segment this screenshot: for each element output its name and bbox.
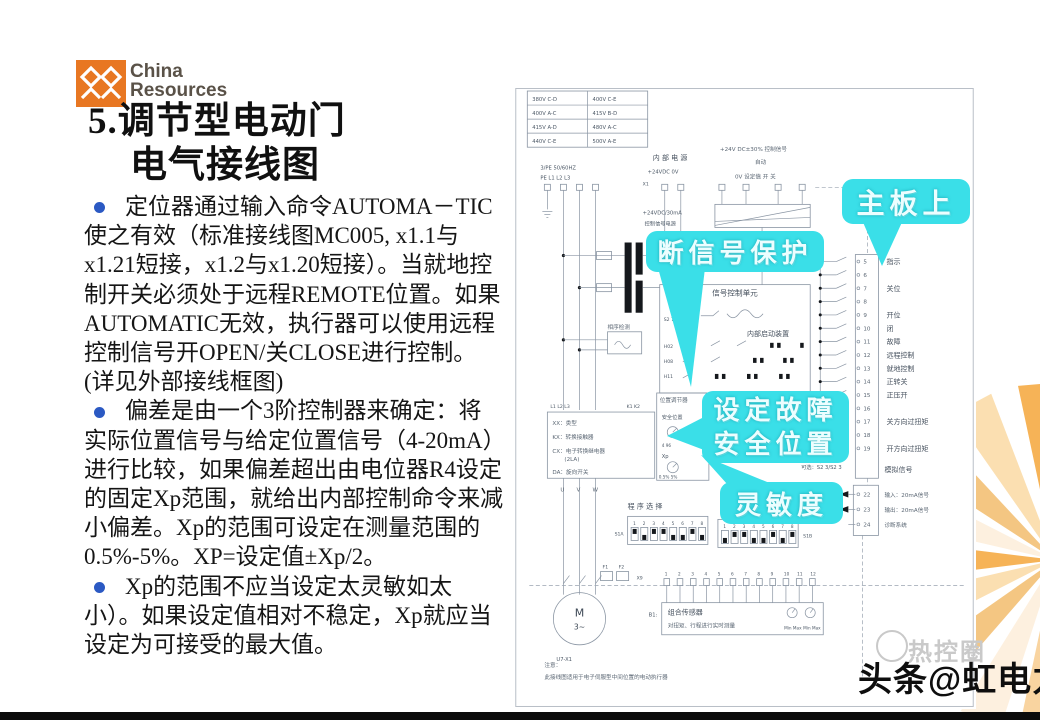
svg-text:KX：转换接触器: KX：转换接触器 xyxy=(552,433,594,441)
svg-text:对扭矩、行程进行实时测量: 对扭矩、行程进行实时测量 xyxy=(668,622,736,630)
callout-mainboard-text: 主板上 xyxy=(856,182,955,222)
presentation-slide: China Resources 5.调节型电动门 电气接线图 定位器通过输入命令… xyxy=(0,0,1040,720)
svg-text:15: 15 xyxy=(863,393,871,399)
svg-text:6: 6 xyxy=(731,572,734,577)
svg-text:19: 19 xyxy=(863,446,871,452)
callout-signal-loss-text: 断信号保护 xyxy=(657,233,812,270)
svg-text:闭: 闭 xyxy=(886,324,893,333)
svg-text:8: 8 xyxy=(757,572,760,577)
svg-text:关位: 关位 xyxy=(886,284,900,293)
svg-text:6: 6 xyxy=(681,521,684,526)
svg-text:17: 17 xyxy=(863,420,871,426)
svg-text:组合传感器: 组合传感器 xyxy=(668,608,703,617)
svg-text:3: 3 xyxy=(743,524,746,529)
svg-text:6: 6 xyxy=(863,273,867,279)
svg-text:诊断系统: 诊断系统 xyxy=(884,521,907,529)
svg-text:W: W xyxy=(593,487,599,493)
bullet-text: 偏差是由一个3阶控制器来确定：将实际位置信号与给定位置信号（4-20mA）进行比… xyxy=(84,398,503,569)
svg-text:10: 10 xyxy=(784,572,790,577)
svg-text:7: 7 xyxy=(691,521,694,526)
svg-text:内部启动装置: 内部启动装置 xyxy=(747,329,789,338)
svg-text:440V C-E: 440V C-E xyxy=(532,139,556,145)
svg-text:安全位置: 安全位置 xyxy=(662,413,683,421)
svg-text:注意：: 注意： xyxy=(544,661,561,669)
svg-text:Min Max: Min Max xyxy=(803,626,821,631)
svg-text:7: 7 xyxy=(781,524,784,529)
svg-text:23: 23 xyxy=(863,507,871,513)
callout-sensitivity-text: 灵敏度 xyxy=(735,485,828,522)
svg-text:0.5% 5%: 0.5% 5% xyxy=(659,474,678,479)
svg-text:开位: 开位 xyxy=(886,310,900,319)
svg-text:8: 8 xyxy=(863,300,867,306)
brand-text: China Resources xyxy=(130,62,227,100)
svg-text:H11: H11 xyxy=(664,374,673,380)
svg-text:自动: 自动 xyxy=(755,158,767,166)
svg-text:H02: H02 xyxy=(664,344,673,350)
bullet-icon xyxy=(94,582,105,593)
svg-text:9: 9 xyxy=(771,572,774,577)
svg-text:K1 K2: K1 K2 xyxy=(627,404,640,410)
svg-text:可选：S2 3/S2 3: 可选：S2 3/S2 3 xyxy=(801,463,842,471)
bullet-icon xyxy=(94,407,105,418)
svg-text:3/PE 50/60HZ: 3/PE 50/60HZ xyxy=(540,165,576,171)
callout-failsafe: 设定故障安全位置 xyxy=(702,391,849,463)
svg-text:16: 16 xyxy=(863,406,871,412)
svg-text:2: 2 xyxy=(643,521,646,526)
bullet-icon xyxy=(94,202,105,213)
svg-text:输入：20mA信号: 输入：20mA信号 xyxy=(884,491,929,499)
svg-text:22: 22 xyxy=(863,492,870,498)
svg-text:3: 3 xyxy=(691,572,694,577)
watermark-black: 头条@虹电力 xyxy=(858,652,1040,701)
svg-text:4: 4 xyxy=(752,524,755,529)
svg-text:此接线图适用于电子伺服型中间位置的电动执行器: 此接线图适用于电子伺服型中间位置的电动执行器 xyxy=(544,673,668,681)
body-text: 定位器通过输入命令AUTOMA－TIC使之有效（标准接线图MC005, x1.1… xyxy=(84,192,504,659)
svg-text:1: 1 xyxy=(665,572,668,577)
callout-signal-loss: 断信号保护 xyxy=(646,231,824,272)
svg-text:3~: 3~ xyxy=(574,623,585,632)
bottom-black-bar xyxy=(0,712,1040,720)
svg-text:8: 8 xyxy=(701,521,704,526)
svg-text:4: 4 xyxy=(704,572,707,577)
callout-sensitivity: 灵敏度 xyxy=(720,482,843,524)
callout-failsafe-text: 设定故障安全位置 xyxy=(713,393,837,461)
svg-text:PE L1 L2 L3: PE L1 L2 L3 xyxy=(540,175,570,181)
svg-text:程 序 选 择: 程 序 选 择 xyxy=(628,501,663,510)
svg-text:远程控制: 远程控制 xyxy=(886,350,914,359)
svg-text:480V A-C: 480V A-C xyxy=(593,125,617,131)
svg-text:13: 13 xyxy=(863,366,871,372)
svg-text:U: U xyxy=(560,487,564,493)
bullet-paragraph: Xp的范围不应当设定太灵敏如太小）。如果设定值相对不稳定，Xp就应当设定为可接受… xyxy=(84,572,504,660)
brand-line1: China xyxy=(130,62,227,81)
svg-text:DA：旋向开关: DA：旋向开关 xyxy=(552,468,588,476)
brand-line2: Resources xyxy=(130,81,227,100)
svg-text:S1A: S1A xyxy=(615,531,625,537)
svg-text:H08: H08 xyxy=(664,359,673,365)
svg-text:5: 5 xyxy=(718,572,721,577)
bullet-paragraph: 偏差是由一个3阶控制器来确定：将实际位置信号与给定位置信号（4-20mA）进行比… xyxy=(84,396,504,571)
svg-text:400V A-C: 400V A-C xyxy=(532,111,556,117)
svg-text:400V C-E: 400V C-E xyxy=(593,97,617,103)
svg-text:5: 5 xyxy=(863,260,867,266)
svg-text:S1B: S1B xyxy=(803,533,812,539)
svg-text:4 96: 4 96 xyxy=(662,443,672,448)
svg-text:F2: F2 xyxy=(619,565,625,571)
svg-text:415V A-D: 415V A-D xyxy=(532,125,556,131)
svg-text:信号控制单元: 信号控制单元 xyxy=(712,288,758,298)
svg-text:2: 2 xyxy=(678,572,681,577)
svg-text:10: 10 xyxy=(863,326,871,332)
svg-text:V: V xyxy=(576,487,580,493)
svg-text:500V A-E: 500V A-E xyxy=(593,139,617,145)
svg-text:8: 8 xyxy=(791,524,794,529)
svg-text:5: 5 xyxy=(672,521,675,526)
svg-text:0V 设定值 开 关: 0V 设定值 开 关 xyxy=(735,172,776,180)
svg-text:11: 11 xyxy=(863,340,871,346)
svg-text:M: M xyxy=(575,607,585,620)
title-line2: 电气接线图 xyxy=(88,144,346,188)
svg-text:11: 11 xyxy=(797,572,803,577)
svg-text:CX：电子转换继电器: CX：电子转换继电器 xyxy=(552,447,605,455)
svg-text:+24VDC/30mA: +24VDC/30mA xyxy=(643,210,683,216)
svg-text:正转关: 正转关 xyxy=(886,377,907,386)
bullet-paragraph: 定位器通过输入命令AUTOMA－TIC使之有效（标准接线图MC005, x1.1… xyxy=(84,192,504,396)
bullet-text: Xp的范围不应当设定太灵敏如太小）。如果设定值相对不稳定，Xp就应当设定为可接受… xyxy=(84,574,492,657)
svg-text:故障: 故障 xyxy=(886,337,900,346)
slide-title: 5.调节型电动门 电气接线图 xyxy=(88,100,346,188)
svg-text:指示: 指示 xyxy=(886,257,900,266)
svg-text:X9: X9 xyxy=(637,576,643,582)
svg-text:Min Max: Min Max xyxy=(784,626,802,631)
svg-text:X1: X1 xyxy=(643,181,649,187)
svg-text:12: 12 xyxy=(863,353,870,359)
callout-mainboard: 主板上 xyxy=(842,179,970,224)
svg-text:1: 1 xyxy=(633,521,636,526)
svg-text:XX：类型: XX：类型 xyxy=(552,419,577,427)
svg-text:4: 4 xyxy=(662,521,665,526)
svg-text:7: 7 xyxy=(744,572,747,577)
svg-text:9: 9 xyxy=(863,313,867,319)
svg-text:6: 6 xyxy=(772,524,775,529)
svg-text:12: 12 xyxy=(810,572,816,577)
svg-text:模拟信号: 模拟信号 xyxy=(884,465,912,474)
svg-text:5: 5 xyxy=(762,524,765,529)
svg-text:S2 7: S2 7 xyxy=(664,317,674,323)
svg-text:+24VDC 0V: +24VDC 0V xyxy=(648,169,679,175)
svg-text:3: 3 xyxy=(652,521,655,526)
svg-text:L1 L2 L3: L1 L2 L3 xyxy=(550,404,569,410)
svg-text:输出：20mA信号: 输出：20mA信号 xyxy=(884,506,929,514)
svg-text:控制信号电源: 控制信号电源 xyxy=(645,219,677,227)
svg-text:关方向过扭矩: 关方向过扭矩 xyxy=(886,417,928,426)
svg-text:Xp: Xp xyxy=(662,454,670,460)
svg-text:内 部 电 源: 内 部 电 源 xyxy=(653,153,688,162)
svg-text:2: 2 xyxy=(733,524,736,529)
svg-text:相序检测: 相序检测 xyxy=(608,323,631,331)
svg-text:14: 14 xyxy=(863,380,871,386)
svg-text:24: 24 xyxy=(863,522,871,528)
svg-text:1: 1 xyxy=(723,524,726,529)
svg-text:380V C-D: 380V C-D xyxy=(532,97,557,103)
svg-text:+24V DC±30% 控制信号: +24V DC±30% 控制信号 xyxy=(720,145,787,153)
svg-text:正压开: 正压开 xyxy=(886,390,907,399)
svg-text:B1:: B1: xyxy=(649,613,658,619)
svg-text:F1: F1 xyxy=(603,565,609,571)
svg-text:位置调节器: 位置调节器 xyxy=(660,396,688,404)
svg-text:就地控制: 就地控制 xyxy=(886,364,914,373)
bullet-text: 定位器通过输入命令AUTOMA－TIC使之有效（标准接线图MC005, x1.1… xyxy=(84,194,501,394)
svg-text:415V B-D: 415V B-D xyxy=(593,111,618,117)
svg-text:7: 7 xyxy=(863,286,867,292)
svg-text:开方向过扭矩: 开方向过扭矩 xyxy=(886,444,928,453)
svg-text:(2LA): (2LA) xyxy=(564,457,579,463)
title-line1: 5.调节型电动门 xyxy=(88,100,346,144)
svg-text:18: 18 xyxy=(863,433,871,439)
